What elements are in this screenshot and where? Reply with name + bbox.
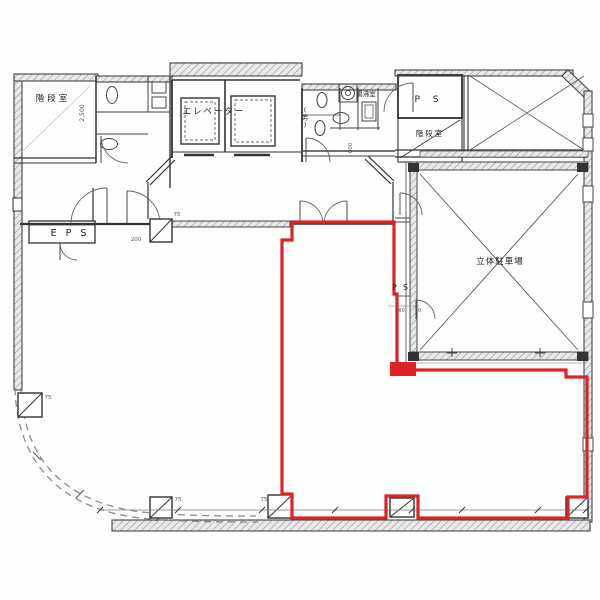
column — [268, 495, 292, 518]
parking-left-wall — [410, 162, 417, 360]
elevator-car-1 — [181, 98, 219, 144]
label-600: 600 — [348, 142, 354, 153]
lobby-splay-walls — [146, 156, 394, 222]
label-75: 75 — [174, 212, 181, 218]
column — [18, 393, 42, 417]
columns — [18, 393, 588, 518]
label-200: 200 — [131, 237, 142, 243]
room-labels: 階段室エレベーター湯沸室(男)P S階段室立体駐車場P SE P S — [36, 89, 524, 292]
upper-right-bottom-wall — [395, 150, 588, 157]
curved-wall-ticks — [33, 452, 164, 521]
label-20: 20 — [415, 308, 421, 314]
floor-plan-svg: 階段室エレベーター湯沸室(男)P S階段室立体駐車場P SE P S 2,500… — [0, 0, 600, 600]
label-stairwell-right: 階段室 — [416, 128, 445, 138]
toilet-block — [96, 76, 170, 163]
column — [150, 497, 172, 518]
toilet-fixture — [107, 87, 118, 104]
label-pipe-shaft-upper-right: P S — [414, 95, 443, 105]
column — [390, 498, 414, 517]
label-parking: 立体駐車場 — [476, 256, 524, 267]
parking-bottom-wall — [410, 352, 588, 360]
curved-wall-dashed — [15, 388, 258, 522]
annotation-texts: 2,5006002007575757516020 — [45, 104, 422, 503]
elevator-car-2 — [231, 96, 275, 146]
label-75: 75 — [261, 497, 268, 503]
label-eps: E P S — [51, 228, 90, 239]
label-kitchenette: 湯沸室 — [356, 89, 376, 98]
tenant-highlight-outline — [282, 222, 587, 518]
highlight-block — [390, 362, 416, 376]
label-75: 75 — [175, 497, 182, 503]
elevator-block — [170, 63, 302, 188]
top-wall-toilet — [96, 76, 172, 82]
sink-fixture — [333, 113, 349, 124]
label-2,500: 2,500 — [79, 104, 86, 121]
label-75: 75 — [45, 395, 52, 401]
label-elevator: エレベーター — [182, 107, 245, 117]
corridor-column — [150, 219, 172, 242]
bottom-wall — [112, 520, 590, 531]
parking-top-wall — [410, 162, 588, 170]
cross-room-upper-right — [470, 76, 584, 150]
top-wall-left — [14, 74, 98, 81]
ps-stair-block — [384, 75, 468, 162]
label-160: 160 — [395, 308, 405, 314]
floor-plan-page: 階段室エレベーター湯沸室(男)P S階段室立体駐車場P SE P S 2,500… — [0, 0, 600, 600]
label-stairwell-upper-left: 階段室 — [36, 93, 71, 104]
outer-walls — [14, 63, 592, 531]
sink-fixture — [101, 139, 118, 150]
corridor-door-arcs — [71, 188, 347, 224]
label-pipe-shaft-mid: P S — [392, 283, 410, 292]
tenant-area-outline — [282, 222, 587, 518]
left-wall — [14, 74, 22, 390]
